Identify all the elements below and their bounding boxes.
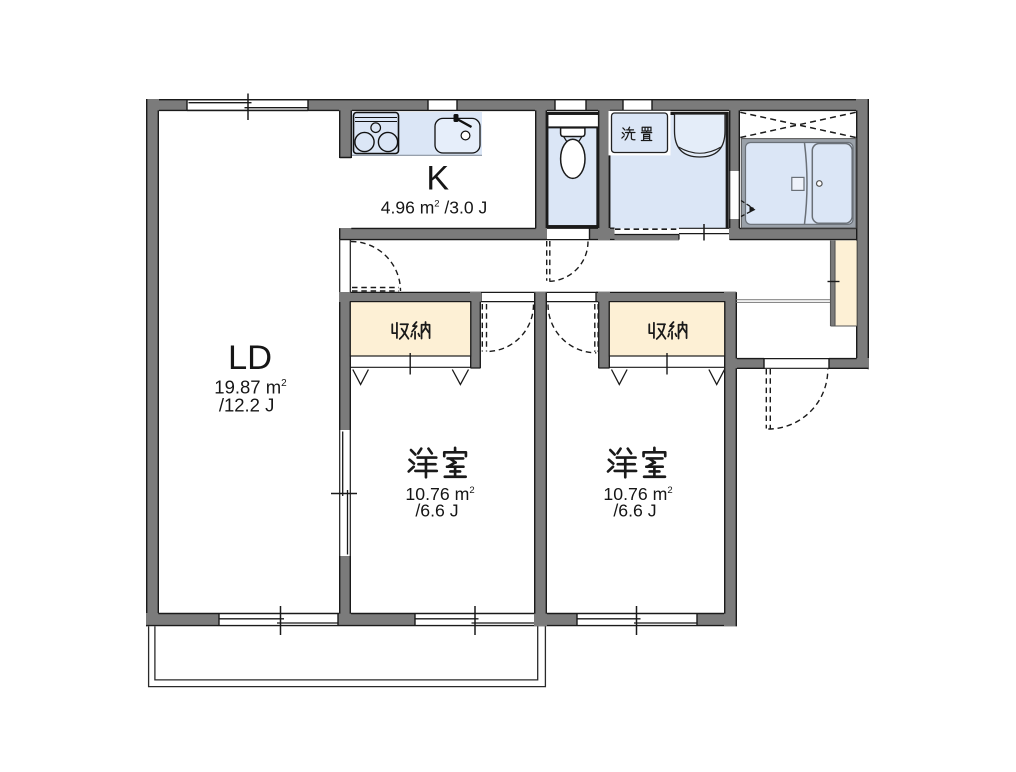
svg-text:/6.6 J: /6.6 J: [415, 501, 458, 521]
svg-text:/12.2 J: /12.2 J: [219, 394, 275, 415]
svg-text:4.96 m2 /3.0 J: 4.96 m2 /3.0 J: [381, 198, 487, 218]
svg-text:K: K: [426, 160, 449, 198]
svg-text:LD: LD: [228, 339, 272, 377]
svg-text:/6.6 J: /6.6 J: [613, 501, 656, 521]
